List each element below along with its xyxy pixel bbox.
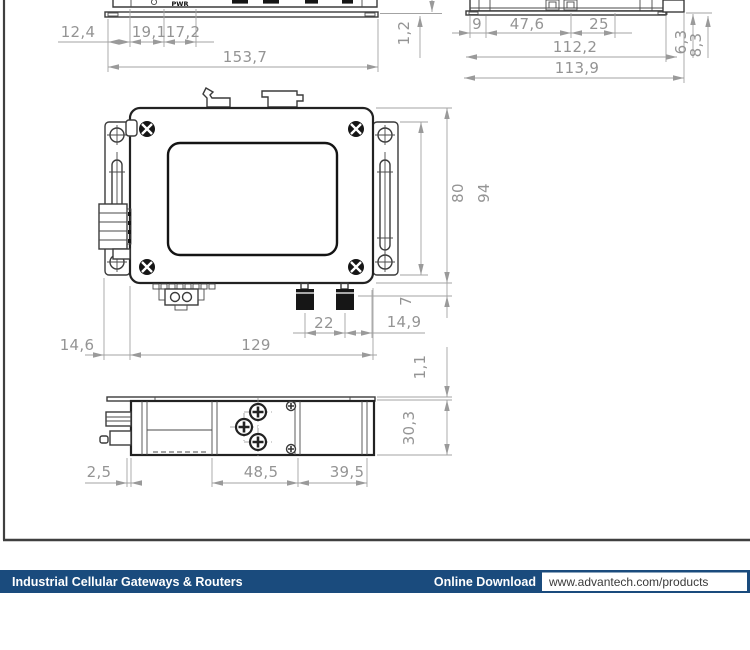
side-view-outline <box>466 0 684 15</box>
antenna-connector-2 <box>336 283 354 310</box>
product-url-link[interactable]: www.advantech.com/products <box>548 575 708 589</box>
dim-top-total: 94 <box>475 183 493 203</box>
side-tab <box>126 120 137 136</box>
screw <box>236 419 252 435</box>
side-baseplate <box>466 11 666 15</box>
front-dimensions: 12,4 19,1 17,2 153,7 1,2 <box>58 0 442 72</box>
front-view: PWR 12,4 19,1 17,2 153,7 <box>58 0 442 72</box>
dim-side-b: 47,6 <box>510 15 545 33</box>
din-rail-clip <box>203 88 303 107</box>
top-view: 80 94 7 22 14,9 14,6 129 <box>60 88 493 360</box>
port-label-blob <box>342 0 353 4</box>
dim-front-c: 17,2 <box>166 23 201 41</box>
sim-connector <box>564 0 577 10</box>
dim-front-b: 19,1 <box>132 23 167 41</box>
screw <box>348 259 364 275</box>
port-label-blob <box>305 0 318 4</box>
dim-top-right: 14,9 <box>387 313 422 331</box>
screw <box>287 402 296 411</box>
dim-side-inner: 112,2 <box>553 38 597 56</box>
dim-bottom-h: 30,3 <box>400 411 418 446</box>
side-dimensions: 9 47,6 25 112,2 113,9 6,3 8,3 <box>452 13 712 83</box>
pwr-label: PWR <box>172 0 189 8</box>
dim-side-c: 25 <box>589 15 609 33</box>
port-label-blob <box>263 0 279 4</box>
serial-connector-side <box>100 412 131 445</box>
terminal-row <box>153 284 215 289</box>
serial-connector <box>99 204 131 259</box>
dim-top-spacing: 22 <box>314 314 334 332</box>
screw <box>348 121 364 137</box>
front-baseplate <box>105 12 378 17</box>
dim-side-outer: 113,9 <box>555 59 599 77</box>
screw <box>287 445 296 454</box>
dim-side-v2: 8,3 <box>687 33 705 58</box>
dim-top-ant: 7 <box>397 296 415 306</box>
dim-side-a: 9 <box>472 15 482 33</box>
dimension-drawing: PWR 12,4 19,1 17,2 153,7 <box>0 0 750 650</box>
side-view: 9 47,6 25 112,2 113,9 6,3 8,3 <box>452 0 712 83</box>
dim-front-plate: 1,2 <box>395 21 413 46</box>
footer-category-label: Industrial Cellular Gateways & Routers <box>12 575 243 589</box>
mounting-bracket-right <box>373 122 398 275</box>
screw <box>139 259 155 275</box>
footer-bar: Industrial Cellular Gateways & Routers O… <box>0 570 750 593</box>
screw <box>250 404 266 420</box>
dim-bottom-c: 39,5 <box>330 463 365 481</box>
antenna-connector-1 <box>296 283 314 310</box>
dim-top-left: 14,6 <box>60 336 95 354</box>
dim-front-a: 12,4 <box>61 23 96 41</box>
sim-connector <box>546 0 559 10</box>
port-label-blob <box>232 0 248 4</box>
bottom-view: 2,5 48,5 39,5 30,3 1,1 <box>85 347 452 487</box>
datasheet-page: PWR 12,4 19,1 17,2 153,7 <box>0 0 750 650</box>
screw <box>250 434 266 450</box>
front-view-outline: PWR <box>113 0 377 8</box>
dim-top-bracket: 80 <box>449 183 467 203</box>
dim-bottom-plate: 1,1 <box>411 355 429 380</box>
dim-front-total: 153,7 <box>223 48 267 66</box>
power-terminal-block <box>159 289 204 310</box>
dim-bottom-a: 2,5 <box>87 463 112 481</box>
label-area <box>168 143 337 255</box>
online-download-label: Online Download <box>434 575 536 589</box>
screw <box>139 121 155 137</box>
dim-bottom-b: 48,5 <box>244 463 279 481</box>
antenna-bulkhead <box>663 0 684 12</box>
reset-button-icon <box>151 0 156 5</box>
dim-top-body: 129 <box>241 336 271 354</box>
